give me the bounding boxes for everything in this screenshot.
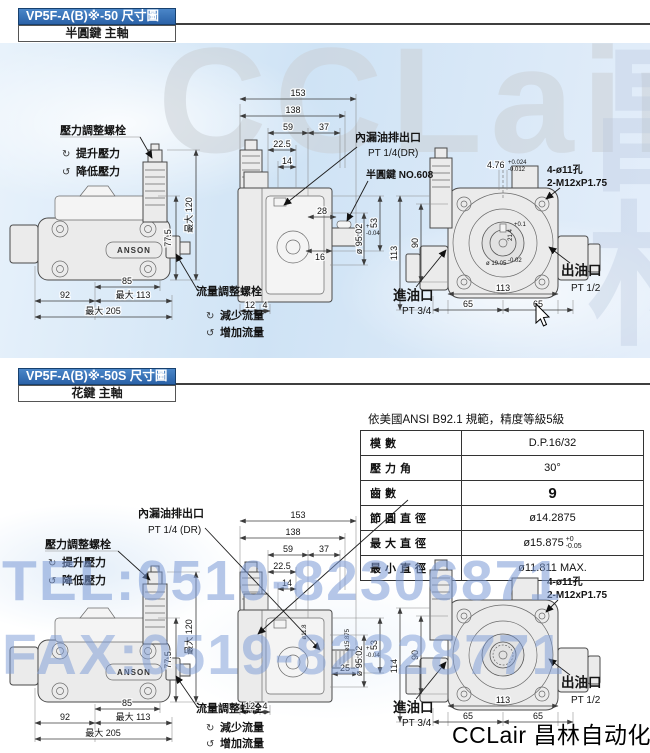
dim-4-76: 4.76	[487, 160, 505, 170]
raise-pressure-label: 提升壓力	[62, 555, 106, 569]
inlet-port-label: 進油口	[393, 287, 434, 303]
dim-37: 37	[319, 544, 329, 554]
outlet-port-size: PT 1/2	[571, 283, 601, 294]
dim-113-bottom: 113	[496, 695, 510, 705]
dim-22-5: 22.5	[273, 561, 291, 571]
dim-max120: 最大 120	[183, 619, 194, 655]
inlet-port-label: 進油口	[393, 699, 434, 715]
dim-77-5: 77.5	[163, 229, 173, 247]
outlet-port-label: 出油口	[561, 262, 602, 278]
thread-label: 2-M12xP1.75	[547, 178, 607, 189]
section2-drawings: 壓力調整螺栓 ↻ 提升壓力 ↺ 降低壓力 流量調整螺栓 ↻ 減少流量 ↺ 增加流…	[0, 440, 650, 753]
drain-port-size: PT 1/4(DR)	[368, 148, 418, 159]
dim-12: 12	[245, 701, 255, 711]
dim-spline-od: ø15.875	[345, 628, 351, 651]
woodruff-key-label: 半圓鍵 NO.608	[366, 168, 434, 181]
inlet-port-size: PT 3/4	[402, 306, 432, 317]
dim-max120: 最大 120	[183, 197, 194, 233]
dim-14: 14	[282, 578, 292, 588]
lower-pressure-label: 降低壓力	[76, 164, 120, 178]
section1-drawings: 壓力調整螺栓 ↻ 提升壓力 ↺ 降低壓力 流量調整螺栓 ↻ 減少流量 ↺ 增加流…	[0, 43, 650, 358]
decrease-flow-label: 減少流量	[220, 308, 264, 322]
dim-53: 53	[369, 218, 379, 228]
dim-113-bottom: 113	[496, 283, 510, 293]
dim-4: 4	[262, 300, 267, 310]
dim-37: 37	[319, 122, 329, 132]
tol-4-76-bot: -0.012	[508, 167, 526, 173]
rotate-cw-icon: ↻	[62, 149, 70, 160]
dim-114-vertical: 114	[389, 659, 399, 673]
tol-21-4: +0.1	[514, 222, 527, 228]
dim-28: 28	[317, 206, 327, 216]
dim-21-4: 21.4	[508, 229, 514, 241]
rotate-ccw-icon: ↺	[48, 576, 56, 587]
dim-59: 59	[283, 122, 293, 132]
pilot-tol-bot: -0.04	[366, 231, 380, 237]
dim-59: 59	[283, 544, 293, 554]
increase-flow-label: 增加流量	[220, 325, 264, 339]
outlet-port-size: PT 1/2	[571, 695, 601, 706]
section1-title: VP5F-A(B)※-50 尺寸圖	[18, 8, 176, 25]
dim-90: 90	[410, 238, 420, 248]
dim-max205: 最大 205	[85, 305, 121, 316]
flow-adjust-label: 流量調整螺栓	[196, 284, 262, 298]
lower-pressure-label: 降低壓力	[62, 573, 106, 587]
dim-85: 85	[122, 276, 132, 286]
spline-standard-note: 依美國ANSI B92.1 規範，精度等級5級	[368, 411, 646, 427]
dim-153: 153	[290, 88, 305, 98]
dim-max205: 最大 205	[85, 727, 121, 738]
rotate-cw-icon: ↻	[206, 311, 214, 322]
tol-19-05: -0.02	[508, 258, 522, 264]
dim-14: 14	[282, 156, 292, 166]
inlet-port-size: PT 3/4	[402, 718, 432, 729]
dim-12: 12	[245, 300, 255, 310]
section2-title: VP5F-A(B)※-50S 尺寸圖	[18, 368, 176, 385]
section2-subtitle: 花鍵 主軸	[18, 385, 176, 402]
dim-pilot-95-02: ø 95.02	[354, 646, 364, 677]
dim-85: 85	[122, 698, 132, 708]
mounting-holes-label: 4-ø11孔	[547, 163, 583, 176]
drain-port-size: PT 1/4 (DR)	[148, 525, 201, 536]
pilot-tol-bot: -0.04	[366, 653, 380, 659]
pressure-adjust-label: 壓力調整螺栓	[45, 537, 111, 551]
dim-77-5: 77.5	[163, 651, 173, 669]
pressure-adjust-label: 壓力調整螺栓	[60, 123, 126, 137]
dim-92: 92	[60, 290, 70, 300]
dim-138: 138	[285, 527, 300, 537]
dim-53: 53	[369, 640, 379, 650]
rotate-cw-icon: ↻	[48, 558, 56, 569]
dim-113-vertical: 113	[389, 246, 399, 260]
dim-19-05: ø 19.05	[486, 261, 507, 267]
dim-153: 153	[290, 510, 305, 520]
dim-max113: 最大 113	[116, 289, 151, 300]
dim-138: 138	[285, 105, 300, 115]
decrease-flow-label: 減少流量	[220, 720, 264, 734]
drain-port-label: 內漏油排出口	[138, 506, 204, 520]
dim-pilot-95-02: ø 95.02	[354, 224, 364, 255]
dim-25: 25	[340, 663, 350, 673]
anson-logo: ANSON	[117, 246, 151, 255]
dim-22-5: 22.5	[273, 139, 291, 149]
thread-label: 2-M12xP1.75	[547, 590, 607, 601]
dim-92: 92	[60, 712, 70, 722]
rotate-ccw-icon: ↺	[206, 328, 214, 339]
pump-side-view	[238, 94, 384, 314]
dim-4: 4	[262, 701, 267, 711]
drain-port-label: 內漏油排出口	[355, 130, 421, 144]
increase-flow-label: 增加流量	[220, 736, 264, 750]
tol-4-76-top: +0.024	[508, 160, 527, 166]
dim-65-left: 65	[463, 299, 473, 309]
raise-pressure-label: 提升壓力	[76, 146, 120, 160]
footer-brand: CCLair 昌林自动化	[452, 716, 650, 750]
outlet-port-label: 出油口	[561, 674, 602, 690]
section1-subtitle: 半圓鍵 主軸	[18, 25, 176, 42]
datasheet-page: CCLair 昌林自动化 TEL:0510-82306871 FAX:0519-…	[0, 0, 650, 753]
pump-side-view	[238, 516, 384, 715]
dim-90: 90	[410, 650, 420, 660]
dim-16: 16	[315, 252, 325, 262]
mounting-holes-label: 4-ø11孔	[547, 575, 583, 588]
dim-max113: 最大 113	[116, 711, 151, 722]
rotate-cw-icon: ↻	[206, 723, 214, 734]
rotate-ccw-icon: ↺	[206, 739, 214, 750]
anson-logo: ANSON	[117, 668, 151, 677]
rotate-ccw-icon: ↺	[62, 167, 70, 178]
